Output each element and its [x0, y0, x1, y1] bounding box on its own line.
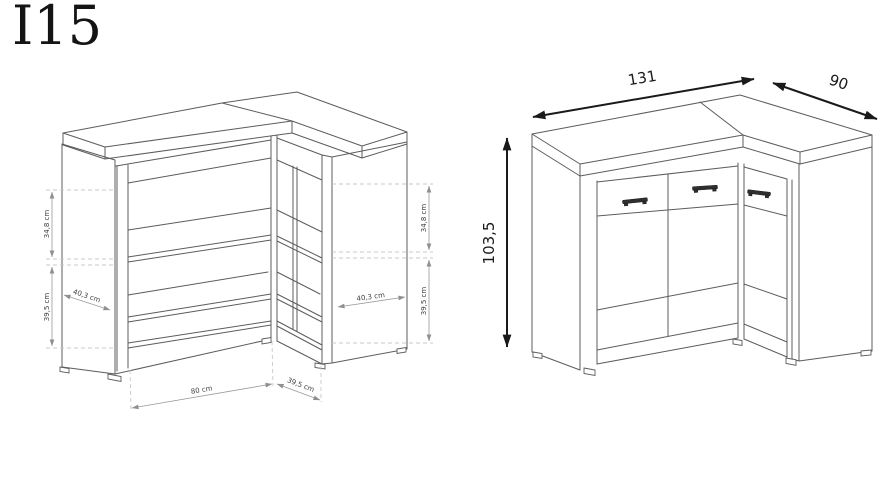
cabinet-foot: [733, 339, 742, 346]
dim-right-upper-height: 34,8 cm: [420, 186, 429, 250]
cabinet-foot: [397, 348, 406, 354]
dim-right-lower-height: 39,5 cm: [420, 260, 429, 341]
open-cabinet-outline: [60, 92, 407, 382]
cabinet-foot: [315, 363, 325, 369]
dim-label-right-lower: 39,5 cm: [420, 287, 428, 316]
cabinet-foot: [786, 358, 796, 365]
cabinet-foot: [262, 338, 271, 345]
cabinet-foot: [861, 350, 871, 356]
dim-bottom-depth: 39,5 cm: [277, 376, 320, 400]
cabinet-foot: [108, 374, 121, 382]
drawing-sheet: I15: [0, 0, 890, 501]
dim-label-overall-width: 131: [627, 67, 658, 90]
interior-dimensions: 34,8 cm 39,5 cm 40,3 cm 34,8 cm 39,5 cm: [43, 184, 433, 409]
dim-label-left-upper: 34,8 cm: [43, 210, 51, 239]
drawer-handle-left: [622, 198, 647, 206]
dim-label-bottom-depth: 39,5 cm: [286, 376, 316, 394]
dim-left-depth: 40,3 cm: [64, 288, 110, 310]
dim-label-right-upper: 34,8 cm: [420, 204, 428, 233]
drawer-handle-middle: [692, 185, 717, 193]
closed-cabinet-outline: [532, 95, 872, 376]
cabinet-foot: [584, 368, 595, 376]
dim-overall-height: 103,5: [480, 138, 507, 347]
interior-view-drawing: 34,8 cm 39,5 cm 40,3 cm 34,8 cm 39,5 cm: [43, 92, 433, 409]
dim-label-overall-height: 103,5: [480, 222, 498, 265]
dim-right-depth: 40,3 cm: [338, 291, 405, 307]
dim-label-overall-depth: 90: [827, 71, 851, 94]
overall-view-drawing: 131 90 103,5: [480, 67, 877, 376]
dim-label-bottom-width: 80 cm: [190, 384, 213, 396]
cabinet-foot: [533, 352, 542, 359]
cabinet-foot: [60, 367, 69, 373]
dim-left-lower-height: 39,5 cm: [43, 267, 52, 346]
dim-left-upper-height: 34,8 cm: [43, 192, 52, 257]
dim-bottom-width: 80 cm: [132, 384, 272, 408]
drawer-handle-right: [747, 190, 771, 199]
dim-label-left-lower: 39,5 cm: [43, 293, 51, 322]
dim-label-left-depth: 40,3 cm: [72, 288, 102, 305]
technical-drawing: 34,8 cm 39,5 cm 40,3 cm 34,8 cm 39,5 cm: [0, 0, 890, 501]
dim-label-right-depth: 40,3 cm: [356, 291, 386, 303]
